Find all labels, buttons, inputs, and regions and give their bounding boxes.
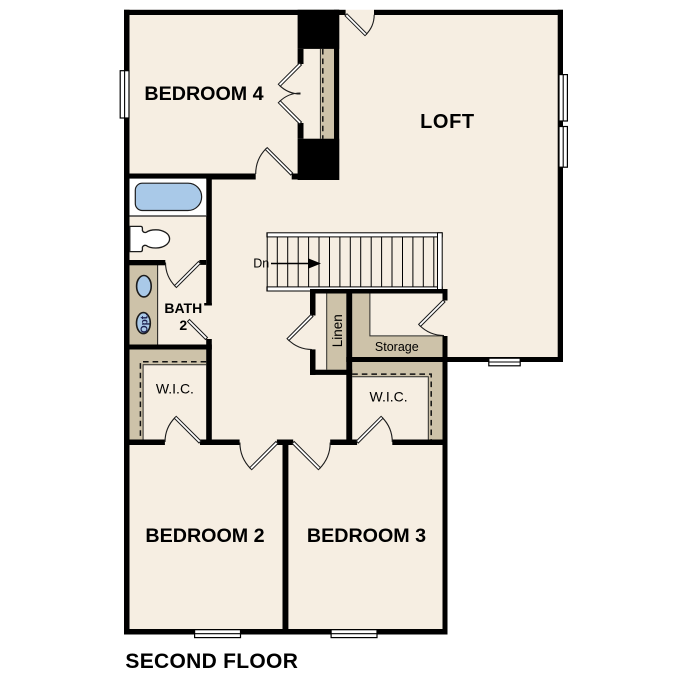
svg-text:LOFT: LOFT bbox=[420, 111, 475, 133]
svg-text:BEDROOM 3: BEDROOM 3 bbox=[307, 525, 426, 547]
svg-text:2: 2 bbox=[179, 317, 187, 333]
svg-text:Linen: Linen bbox=[330, 314, 345, 347]
svg-text:W.I.C.: W.I.C. bbox=[370, 388, 408, 404]
svg-text:SECOND FLOOR: SECOND FLOOR bbox=[125, 650, 298, 673]
svg-text:BATH: BATH bbox=[164, 300, 202, 316]
svg-text:BEDROOM 4: BEDROOM 4 bbox=[144, 83, 263, 105]
svg-text:Dn: Dn bbox=[253, 256, 269, 270]
svg-text:Storage: Storage bbox=[375, 340, 419, 354]
svg-text:Opt.: Opt. bbox=[139, 313, 150, 333]
svg-text:W.I.C.: W.I.C. bbox=[156, 381, 194, 397]
svg-text:BEDROOM 2: BEDROOM 2 bbox=[145, 525, 264, 547]
